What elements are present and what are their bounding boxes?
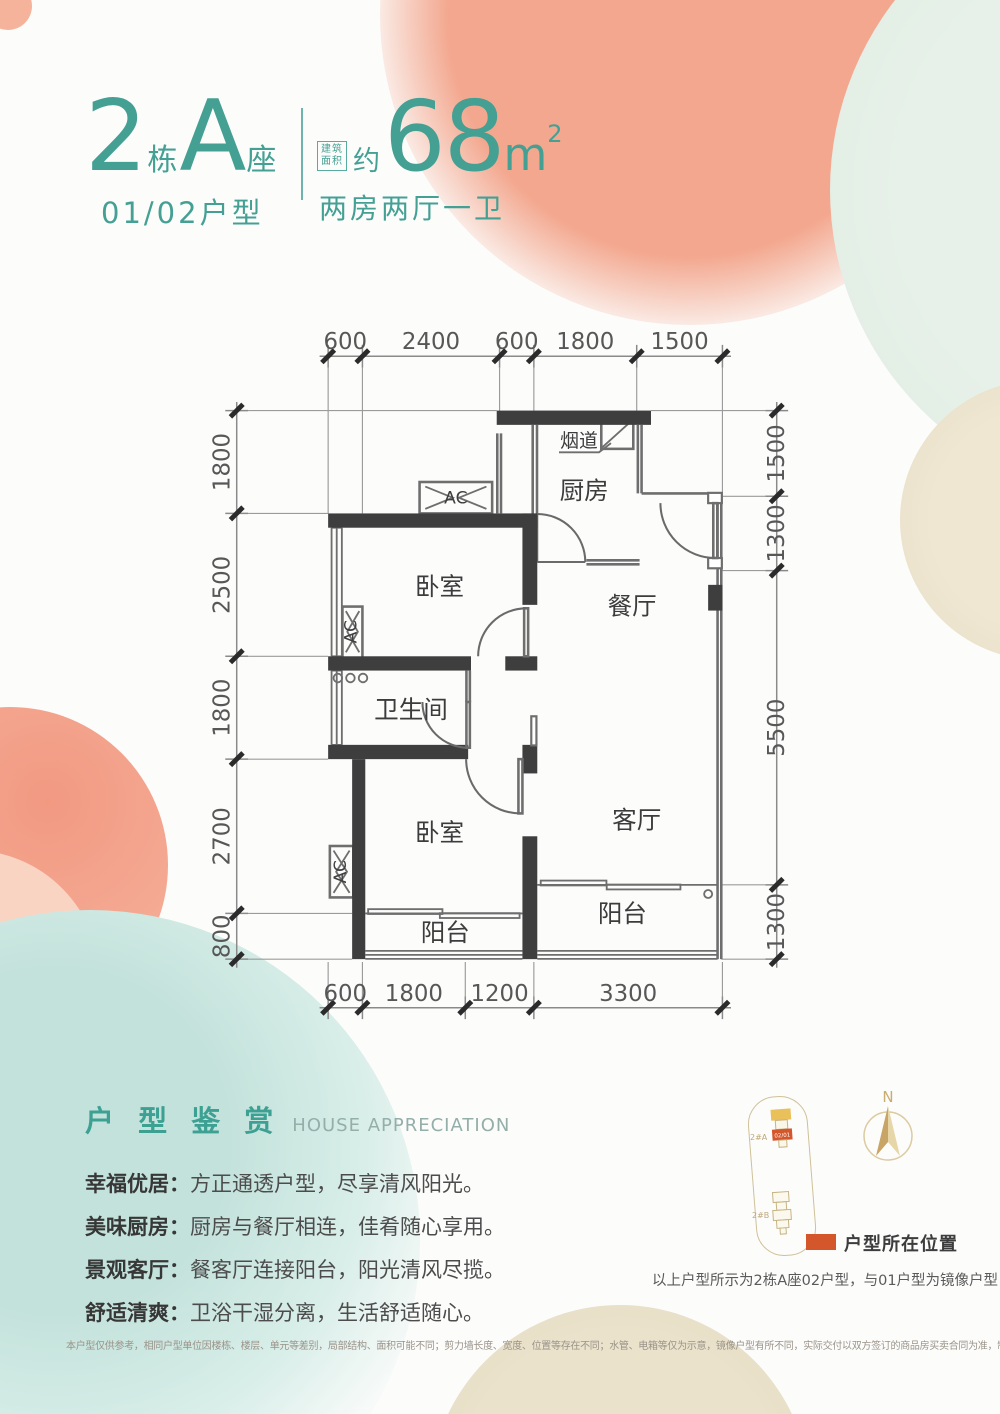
room-label-bathroom: 卫生间: [374, 695, 448, 724]
dim-label: 1500: [764, 424, 790, 482]
point-text: 卫浴干湿分离，生活舒适随心。: [190, 1301, 484, 1325]
hall-door-frame: [531, 716, 536, 745]
tower-letter: A: [179, 88, 244, 186]
appreciation-section: 户 型 鉴 赏 HOUSE APPRECIATION 幸福优居：方正通透户型，尽…: [85, 1098, 645, 1340]
point-label: 舒适清爽：: [85, 1301, 190, 1325]
area-exponent: 2: [547, 120, 562, 148]
appreciation-point: 幸福优居：方正通透户型，尽享清风阳光。: [85, 1168, 645, 1198]
bathroom-detail-circle: [346, 674, 355, 683]
dim-label: 1200: [471, 981, 529, 1007]
decorative-blob-beige: [900, 380, 1000, 660]
room-label-bedroom-bottom: 卧室: [415, 818, 464, 847]
building-a-label: 2#A: [750, 1133, 767, 1142]
area-badge: 建筑面积: [317, 141, 347, 171]
block-suffix: 栋: [147, 135, 177, 179]
point-text: 方正通透户型，尽享清风阳光。: [190, 1172, 484, 1196]
window-lines: [332, 528, 342, 745]
area-unit-letter: m: [503, 128, 547, 181]
point-text: 餐客厅连接阳台，阳光清风尽揽。: [190, 1258, 505, 1282]
appreciation-point: 美味厨房：厨房与餐厅相连，佳肴随心享用。: [85, 1211, 645, 1241]
decorative-dot: [0, 0, 32, 30]
room-label-flue: 烟道: [560, 430, 598, 452]
appreciation-points: 幸福优居：方正通透户型，尽享清风阳光。 美味厨房：厨房与餐厅相连，佳肴随心享用。…: [85, 1168, 645, 1327]
north-label: N: [882, 1088, 893, 1106]
bathroom-detail-circle: [334, 674, 343, 683]
dim-label: 1800: [209, 679, 235, 737]
dim-label: 800: [209, 914, 235, 958]
dim-label: 1300: [764, 504, 790, 562]
header-divider: [301, 108, 303, 200]
dim-label: 5500: [764, 699, 790, 757]
section-title: 户 型 鉴 赏 HOUSE APPRECIATION: [85, 1098, 645, 1140]
area-value: 68: [384, 88, 503, 185]
dim-label: 1300: [764, 893, 790, 951]
sliding-window: [541, 881, 607, 886]
area-badge-line2: 面积: [318, 156, 346, 168]
ac-label: AC: [331, 860, 351, 883]
appreciation-point: 景观客厅：餐客厅连接阳台，阳光清风尽揽。: [85, 1254, 645, 1284]
siteplan-caption: 以上户型所示为2栋A座02户型，与01户型为镜像户型: [652, 1269, 998, 1290]
area-badge-line1: 建筑: [318, 144, 346, 156]
room-label-bedroom-top: 卧室: [415, 572, 464, 601]
point-label: 幸福优居：: [85, 1172, 190, 1196]
dim-label: 600: [495, 329, 539, 355]
dim-label: 1800: [556, 329, 614, 355]
building-b-footprint: [764, 1189, 799, 1239]
room-label-dining: 餐厅: [608, 592, 657, 621]
point-label: 美味厨房：: [85, 1215, 190, 1239]
dim-label: 2500: [209, 556, 235, 614]
area-approx: 约: [353, 139, 380, 178]
section-title-en: HOUSE APPRECIATION: [292, 1115, 510, 1136]
dim-label: 2700: [209, 807, 235, 865]
bathroom-detail-circle: [359, 674, 368, 683]
tower-suffix: 座: [246, 135, 276, 179]
sliding-window: [368, 909, 442, 914]
ac-label: AC: [444, 489, 467, 509]
unit-cell-label: 02/01: [774, 1133, 790, 1140]
legend-swatch: [806, 1234, 836, 1250]
point-label: 景观客厅：: [85, 1258, 190, 1282]
footer-disclaimer: 本户型仅供参考，相同户型单位因楼栋、楼层、单元等差别，局部结构、面积可能不同；剪…: [66, 1337, 966, 1352]
unit-types: 01/02户型: [101, 190, 278, 232]
room-label-balcony-right: 阳台: [598, 899, 647, 928]
north-arrow: N: [858, 1088, 918, 1166]
entry-door-frame: [708, 558, 722, 568]
appreciation-point: 舒适清爽：卫浴干湿分离，生活舒适随心。: [85, 1297, 645, 1327]
point-text: 厨房与餐厅相连，佳肴随心享用。: [190, 1215, 505, 1239]
dim-label: 2400: [402, 329, 460, 355]
page: 2栋A座 01/02户型 建筑面积 约 68 m2 两房两厅一卫: [0, 0, 1000, 1414]
sliding-window: [440, 913, 520, 918]
dim-label: 600: [323, 329, 367, 355]
ac-label: AC: [342, 620, 362, 643]
room-label-balcony-left: 阳台: [421, 918, 470, 947]
balcony-drain: [704, 890, 712, 898]
dim-label: 1500: [651, 329, 709, 355]
area-unit: m2: [503, 120, 562, 181]
balcony-railings: [365, 885, 717, 959]
layout-description: 两房两厅一卫: [319, 187, 563, 227]
header: 2栋A座 01/02户型 建筑面积 约 68 m2 两房两厅一卫: [85, 88, 605, 213]
floor-plan: 600 2400 600 1800 1500 1800 2500 1800 27…: [191, 319, 811, 1045]
dim-label: 1800: [209, 433, 235, 491]
area-title: 建筑面积 约 68 m2 两房两厅一卫: [317, 88, 563, 227]
entry-door-frame: [708, 493, 722, 503]
dim-label: 600: [323, 981, 367, 1007]
dim-label: 3300: [599, 981, 657, 1007]
building-a-footprint: 02/01: [764, 1107, 801, 1155]
dimension-extension-lines: [248, 368, 765, 997]
room-label-kitchen: 厨房: [560, 476, 609, 505]
dim-label: 1800: [385, 981, 443, 1007]
room-label-living: 客厅: [612, 805, 661, 834]
block-number: 2: [85, 88, 145, 186]
sliding-window: [607, 885, 681, 890]
section-title-cn: 户 型 鉴 赏: [85, 1098, 280, 1140]
legend-label: 户型所在位置: [844, 1230, 958, 1256]
building-title: 2栋A座 01/02户型: [85, 88, 278, 232]
